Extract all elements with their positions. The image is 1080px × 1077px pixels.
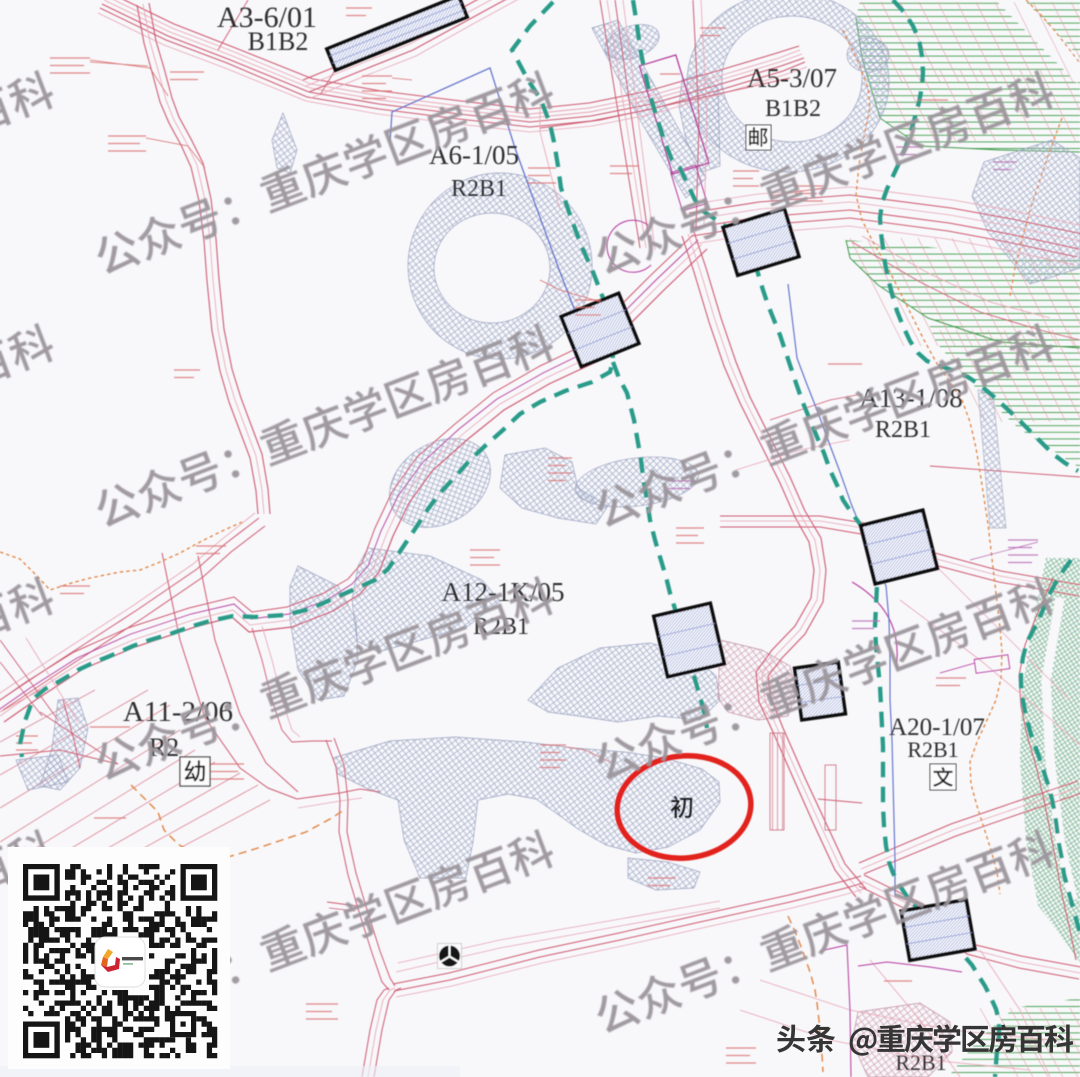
svg-text:R2B1: R2B1 (895, 1050, 946, 1075)
svg-text:A6-1/05: A6-1/05 (429, 140, 519, 170)
svg-text:R2B1: R2B1 (875, 417, 931, 443)
svg-text:B1B2: B1B2 (248, 27, 309, 56)
svg-text:A5-3/07: A5-3/07 (747, 63, 837, 93)
svg-text:R2B1: R2B1 (451, 176, 507, 202)
svg-text:B1B2: B1B2 (765, 96, 821, 122)
svg-text:R2B1: R2B1 (907, 737, 958, 762)
svg-text:A11-2/06: A11-2/06 (123, 696, 233, 728)
